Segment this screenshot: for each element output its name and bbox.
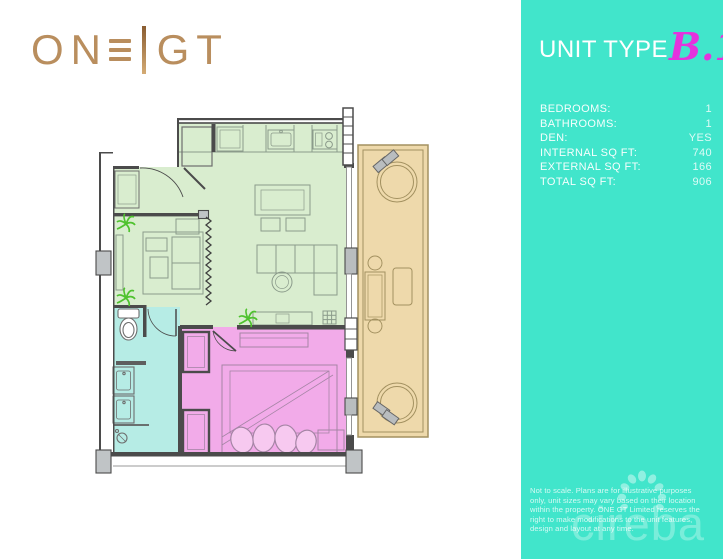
balcony-slider-gray bbox=[345, 248, 357, 274]
window-column-top bbox=[343, 108, 353, 165]
spec-label: INTERNAL SQ FT: bbox=[540, 146, 637, 161]
floorplan-svg bbox=[80, 105, 510, 505]
spec-value: 166 bbox=[692, 160, 712, 175]
spec-row-total-sqft: TOTAL SQ FT: 906 bbox=[540, 175, 712, 190]
spec-value: 1 bbox=[705, 117, 712, 132]
disclaimer-text: Not to scale. Plans are for illustrative… bbox=[530, 486, 700, 534]
spec-label: EXTERNAL SQ FT: bbox=[540, 160, 641, 175]
spec-value: 1 bbox=[705, 102, 712, 117]
spec-row-internal-sqft: INTERNAL SQ FT: 740 bbox=[540, 146, 712, 161]
wardrobe-1 bbox=[183, 332, 209, 372]
spec-label: TOTAL SQ FT: bbox=[540, 175, 616, 190]
bathroom-shelf bbox=[116, 361, 146, 365]
spec-label: DEN: bbox=[540, 131, 568, 146]
spec-value: 740 bbox=[692, 146, 712, 161]
toilet bbox=[118, 309, 139, 340]
window-strip-3 bbox=[347, 358, 352, 398]
column-right-bottom bbox=[346, 450, 362, 473]
spec-value: YES bbox=[689, 131, 712, 146]
spec-row-bedrooms: BEDROOMS: 1 bbox=[540, 102, 712, 117]
logo-text-gt: GT bbox=[157, 29, 229, 71]
logo-text-on: ON bbox=[31, 29, 108, 71]
window-strip-4 bbox=[347, 415, 352, 435]
spec-row-den: DEN: YES bbox=[540, 131, 712, 146]
panel-title: UNIT TYPE bbox=[539, 36, 668, 63]
room-living-kitchen bbox=[178, 123, 348, 327]
logo-e-glyph bbox=[109, 39, 131, 62]
brand-logo: ON GT bbox=[31, 26, 229, 74]
window-strip-1 bbox=[347, 167, 352, 248]
panel-title-row: UNIT TYPEB.1 bbox=[539, 36, 723, 66]
spec-value: 906 bbox=[692, 175, 712, 190]
window-strip-2 bbox=[347, 274, 352, 318]
spec-label: BATHROOMS: bbox=[540, 117, 617, 132]
spec-row-bathrooms: BATHROOMS: 1 bbox=[540, 117, 712, 132]
unit-code: B.1 bbox=[669, 28, 723, 66]
page: ON GT bbox=[0, 0, 723, 559]
spec-row-external-sqft: EXTERNAL SQ FT: 166 bbox=[540, 160, 712, 175]
spec-label: BEDROOMS: bbox=[540, 102, 611, 117]
bedroom-window-gray bbox=[345, 398, 357, 415]
info-panel: UNIT TYPEB.1 BEDROOMS: 1 BATHROOMS: 1 DE… bbox=[521, 0, 723, 559]
specs-list: BEDROOMS: 1 BATHROOMS: 1 DEN: YES INTERN… bbox=[540, 102, 712, 190]
balcony-door-frame bbox=[345, 318, 357, 350]
logo-divider bbox=[142, 26, 146, 74]
column-left-mid bbox=[96, 251, 111, 275]
column-left-bottom bbox=[96, 450, 111, 473]
wardrobe-2 bbox=[183, 410, 209, 454]
